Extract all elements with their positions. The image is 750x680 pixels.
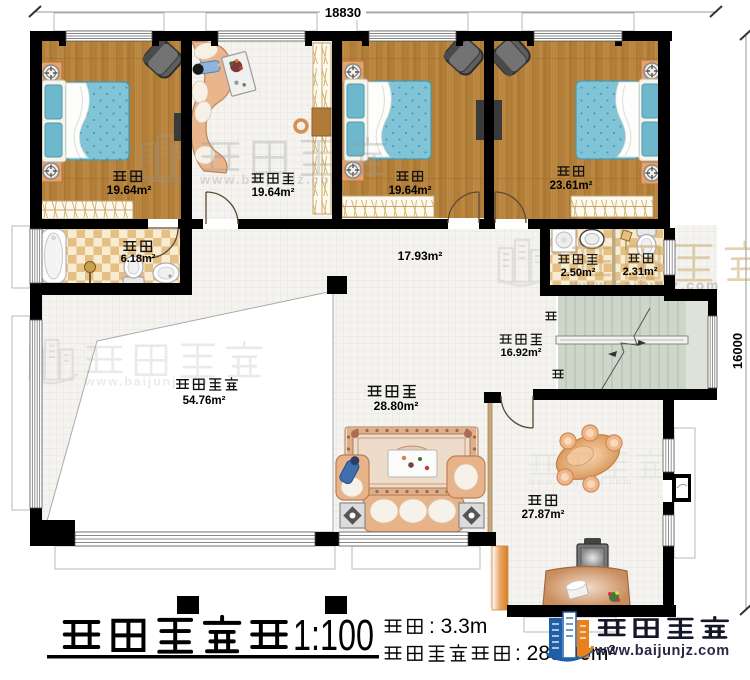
svg-text:28.80m²: 28.80m² (374, 399, 419, 413)
svg-text:19.64m²: 19.64m² (389, 185, 432, 197)
svg-text:www.baijunjz.com: www.baijunjz.com (84, 375, 222, 389)
svg-text:: 3.3m: : 3.3m (429, 615, 487, 638)
svg-text:23.61m²: 23.61m² (550, 180, 593, 192)
svg-text:www.baijunjz.com: www.baijunjz.com (199, 172, 344, 187)
svg-text:17.93m²: 17.93m² (398, 249, 443, 263)
svg-text:1:100: 1:100 (293, 611, 374, 660)
svg-text:16.92m²: 16.92m² (501, 347, 542, 359)
svg-text:54.76m²: 54.76m² (183, 395, 226, 407)
svg-text:18830: 18830 (325, 5, 361, 20)
svg-text:19.64m²: 19.64m² (252, 187, 295, 199)
svg-text:27.87m²: 27.87m² (522, 509, 565, 521)
svg-text:www.baijunjz.com: www.baijunjz.com (594, 643, 730, 659)
svg-text:www.baijunjz.com: www.baijunjz.com (527, 477, 633, 488)
svg-text:2.50m²: 2.50m² (561, 267, 596, 279)
svg-text:19.64m²: 19.64m² (107, 183, 152, 197)
svg-text:16000: 16000 (730, 333, 745, 369)
svg-text:6.18m²: 6.18m² (121, 253, 156, 265)
svg-text:2.31m²: 2.31m² (623, 266, 658, 278)
